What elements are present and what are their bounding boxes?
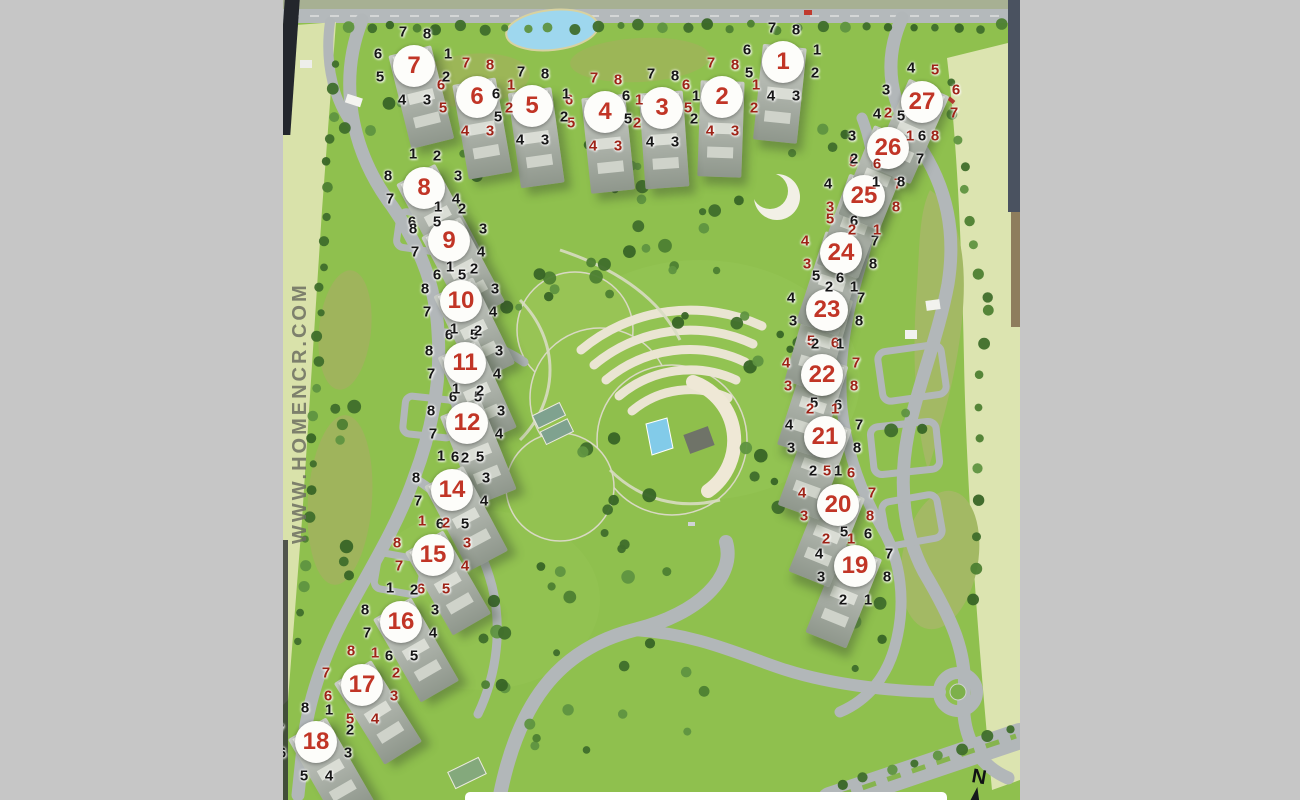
unit-number: 1	[864, 593, 872, 608]
tower-number: 9	[442, 229, 455, 253]
unit-number: 7	[885, 547, 893, 562]
tower-number-badge: 12	[446, 402, 488, 444]
unit-number: 8	[853, 441, 861, 456]
unit-number: 8	[792, 23, 800, 38]
unit-number: 3	[826, 200, 834, 215]
unit-number: 7	[399, 25, 407, 40]
unit-number: 8	[883, 570, 891, 585]
unit-number: 8	[421, 282, 429, 297]
unit-number: 7	[916, 152, 924, 167]
site-model-photo: WWW.HOMENCR.COM 781234561781234562781234…	[0, 0, 1300, 800]
model-table-edge-right-mid	[1011, 212, 1020, 327]
unit-number: 4	[495, 427, 503, 442]
unit-number: 3	[787, 441, 795, 456]
unit-number: 2	[690, 112, 698, 127]
unit-number: 4	[801, 234, 809, 249]
unit-number: 2	[811, 337, 819, 352]
unit-number: 5	[461, 517, 469, 532]
unit-number: 2	[848, 223, 856, 238]
tower-number: 27	[909, 90, 936, 114]
unit-number: 2	[461, 451, 469, 466]
unit-number: 8	[731, 58, 739, 73]
unit-number: 2	[633, 116, 641, 131]
unit-number: 4	[815, 547, 823, 562]
unit-number: 7	[283, 723, 284, 738]
unit-number: 8	[409, 222, 417, 237]
tower-number: 17	[349, 673, 376, 697]
unit-number: 4	[325, 769, 333, 784]
tower-number: 15	[420, 543, 447, 567]
unit-number: 7	[868, 486, 876, 501]
tower-number-badge: 21	[804, 416, 846, 458]
unit-number: 4	[461, 559, 469, 574]
tower-number-badge: 19	[834, 545, 876, 587]
unit-number: 5	[823, 464, 831, 479]
unit-number: 7	[950, 106, 958, 121]
tower-number: 2	[715, 85, 728, 109]
unit-number: 1	[562, 87, 570, 102]
tower-number: 24	[828, 241, 855, 265]
unit-number: 4	[787, 291, 795, 306]
tower-number: 18	[303, 730, 330, 754]
tower-number: 6	[470, 85, 483, 109]
unit-number: 5	[476, 450, 484, 465]
unit-number: 4	[767, 89, 775, 104]
unit-number: 5	[300, 769, 308, 784]
unit-number: 6	[622, 89, 630, 104]
tower-number-badge: 18	[295, 721, 337, 763]
unit-number: 7	[647, 67, 655, 82]
unit-number: 1	[906, 129, 914, 144]
unit-number: 3	[541, 133, 549, 148]
tower-number-badge: 5	[511, 85, 553, 127]
unit-number: 8	[869, 257, 877, 272]
unit-number: 3	[482, 471, 490, 486]
unit-number: 7	[414, 494, 422, 509]
unit-number: 5	[410, 649, 418, 664]
tower-number: 21	[812, 425, 839, 449]
unit-number: 7	[855, 418, 863, 433]
unit-number: 3	[486, 124, 494, 139]
letterbox-right	[1020, 0, 1300, 800]
unit-number: 5	[442, 582, 450, 597]
unit-number: 2	[825, 280, 833, 295]
tower-number-badge: 10	[440, 280, 482, 322]
tower-number-badge: 22	[801, 354, 843, 396]
unit-number: 3	[479, 222, 487, 237]
unit-number: 4	[824, 177, 832, 192]
unit-number: 3	[848, 129, 856, 144]
unit-number: 4	[798, 486, 806, 501]
tower-number-badge: 11	[444, 342, 486, 384]
unit-number: 8	[892, 200, 900, 215]
unit-number: 8	[931, 129, 939, 144]
unit-number: 6	[847, 466, 855, 481]
unit-number: 6	[433, 268, 441, 283]
unit-number: 4	[429, 626, 437, 641]
tower-number: 4	[598, 100, 611, 124]
unit-number: 3	[784, 379, 792, 394]
tower-number: 19	[842, 554, 869, 578]
unit-number: 3	[614, 139, 622, 154]
unit-number: 1	[692, 89, 700, 104]
unit-number: 8	[850, 379, 858, 394]
unit-number: 5	[439, 101, 447, 116]
tower-number: 1	[776, 50, 789, 74]
unit-number: 6	[283, 746, 286, 761]
unit-number: 4	[493, 367, 501, 382]
unit-number: 2	[392, 666, 400, 681]
letterbox-left	[0, 0, 283, 800]
unit-number: 7	[462, 56, 470, 71]
tower-number-badge: 17	[341, 664, 383, 706]
unit-number: 7	[429, 427, 437, 442]
unit-number: 3	[491, 282, 499, 297]
tower-number: 20	[825, 493, 852, 517]
unit-number: 3	[390, 689, 398, 704]
unit-number: 6	[682, 78, 690, 93]
unit-number: 8	[486, 58, 494, 73]
tower-number: 23	[814, 298, 841, 322]
unit-number: 8	[423, 27, 431, 42]
unit-number: 1	[386, 581, 394, 596]
unit-number: 1	[507, 78, 515, 93]
unit-number: 2	[442, 70, 450, 85]
unit-number: 6	[864, 527, 872, 542]
unit-number: 4	[480, 494, 488, 509]
unit-number: 8	[393, 536, 401, 551]
unit-number: 2	[839, 593, 847, 608]
unit-number: 4	[477, 245, 485, 260]
unit-number: 1	[831, 402, 839, 417]
unit-number: 3	[882, 83, 890, 98]
unit-number: 2	[806, 402, 814, 417]
tower-number-badge: 2	[701, 76, 743, 118]
tower-number-badge: 20	[817, 484, 859, 526]
unit-number: 4	[489, 305, 497, 320]
unit-number: 8	[897, 175, 905, 190]
tower-number-badge: 3	[641, 87, 683, 129]
unit-number: 6	[374, 47, 382, 62]
unit-number: 3	[800, 509, 808, 524]
unit-number: 7	[707, 56, 715, 71]
unit-number: 4	[706, 124, 714, 139]
unit-number: 7	[423, 305, 431, 320]
unit-number: 1	[409, 147, 417, 162]
unit-number: 5	[376, 70, 384, 85]
unit-number: 1	[872, 175, 880, 190]
unit-number: 3	[731, 124, 739, 139]
unit-number: 8	[855, 314, 863, 329]
unit-number: 7	[590, 71, 598, 86]
unit-number: 2	[476, 384, 484, 399]
tower-number: 5	[525, 94, 538, 118]
unit-number: 3	[497, 404, 505, 419]
unit-number: 4	[589, 139, 597, 154]
tower-number-badge: 7	[393, 45, 435, 87]
unit-number: 8	[541, 67, 549, 82]
tower-number: 10	[448, 289, 475, 313]
unit-number: 4	[873, 107, 881, 122]
unit-number: 6	[385, 649, 393, 664]
unit-number: 5	[494, 110, 502, 125]
unit-number: 3	[423, 93, 431, 108]
tower-markers-layer: 7812345617812345627812345637812345647812…	[283, 0, 1020, 800]
tower-number-badge: 15	[412, 534, 454, 576]
model-table-edge-right-top	[1008, 0, 1020, 212]
unit-number: 5	[458, 268, 466, 283]
unit-number: 7	[768, 21, 776, 36]
unit-number: 1	[752, 78, 760, 93]
unit-number: 6	[873, 157, 881, 172]
unit-number: 3	[344, 746, 352, 761]
unit-number: 5	[624, 112, 632, 127]
unit-number: 8	[671, 69, 679, 84]
unit-number: 2	[750, 101, 758, 116]
unit-number: 4	[785, 418, 793, 433]
bottom-banner	[465, 792, 947, 800]
unit-number: 1	[873, 223, 881, 238]
unit-number: 1	[850, 280, 858, 295]
unit-number: 2	[822, 532, 830, 547]
unit-number: 2	[442, 516, 450, 531]
unit-number: 2	[850, 152, 858, 167]
unit-number: 3	[803, 257, 811, 272]
unit-number: 7	[395, 559, 403, 574]
unit-number: 8	[866, 509, 874, 524]
unit-number: 2	[884, 106, 892, 121]
unit-number: 8	[427, 404, 435, 419]
unit-number: 2	[505, 101, 513, 116]
unit-number: 3	[495, 344, 503, 359]
unit-number: 4	[461, 124, 469, 139]
north-arrow-icon	[963, 784, 989, 800]
tower-number: 22	[809, 363, 836, 387]
tower-number: 11	[452, 351, 477, 375]
tower-number-badge: 1	[762, 41, 804, 83]
unit-number: 7	[322, 666, 330, 681]
master-plan-photo: WWW.HOMENCR.COM 781234561781234562781234…	[283, 0, 1020, 800]
unit-number: 3	[431, 603, 439, 618]
unit-number: 1	[450, 322, 458, 337]
tower-number: 3	[655, 96, 668, 120]
unit-number: 8	[412, 471, 420, 486]
unit-number: 1	[418, 514, 426, 529]
unit-number: 1	[847, 532, 855, 547]
unit-number: 6	[743, 43, 751, 58]
unit-number: 3	[817, 570, 825, 585]
unit-number: 1	[437, 449, 445, 464]
unit-number: 4	[782, 356, 790, 371]
unit-number: 7	[427, 367, 435, 382]
unit-number: 8	[614, 73, 622, 88]
tower-number: 8	[417, 176, 430, 200]
unit-number: 7	[363, 626, 371, 641]
unit-number: 5	[433, 215, 441, 230]
tower-number: 14	[439, 478, 466, 502]
unit-number: 3	[454, 169, 462, 184]
unit-number: 1	[446, 260, 454, 275]
unit-number: 7	[411, 245, 419, 260]
unit-number: 1	[836, 337, 844, 352]
unit-number: 1	[371, 646, 379, 661]
tower-number: 7	[407, 54, 420, 78]
unit-number: 5	[812, 269, 820, 284]
unit-number: 4	[646, 135, 654, 150]
unit-number: 6	[492, 87, 500, 102]
unit-number: 8	[384, 169, 392, 184]
unit-number: 2	[458, 202, 466, 217]
unit-number: 5	[897, 109, 905, 124]
unit-number: 2	[346, 723, 354, 738]
unit-number: 2	[811, 66, 819, 81]
tower-number: 16	[388, 610, 415, 634]
unit-number: 2	[560, 110, 568, 125]
unit-number: 1	[444, 47, 452, 62]
tower-number: 12	[454, 411, 481, 435]
unit-number: 8	[347, 644, 355, 659]
unit-number: 2	[433, 149, 441, 164]
unit-number: 8	[361, 603, 369, 618]
unit-number: 6	[451, 450, 459, 465]
unit-number: 3	[792, 89, 800, 104]
unit-number: 7	[386, 192, 394, 207]
unit-number: 2	[410, 583, 418, 598]
unit-number: 3	[463, 536, 471, 551]
unit-number: 4	[907, 61, 915, 76]
tower-number-badge: 4	[584, 91, 626, 133]
unit-number: 4	[371, 712, 379, 727]
unit-number: 8	[301, 701, 309, 716]
unit-number: 2	[474, 324, 482, 339]
unit-number: 6	[918, 129, 926, 144]
unit-number: 1	[325, 703, 333, 718]
unit-number: 2	[809, 464, 817, 479]
unit-number: 6	[952, 83, 960, 98]
unit-number: 7	[852, 356, 860, 371]
unit-number: 1	[452, 382, 460, 397]
unit-number: 8	[425, 344, 433, 359]
unit-number: 2	[470, 262, 478, 277]
unit-number: 6	[836, 271, 844, 286]
unit-number: 5	[931, 63, 939, 78]
unit-number: 4	[516, 133, 524, 148]
unit-number: 4	[398, 93, 406, 108]
unit-number: 1	[813, 43, 821, 58]
tower-number-badge: 14	[431, 469, 473, 511]
unit-number: 7	[517, 65, 525, 80]
unit-number: 1	[834, 464, 842, 479]
unit-number: 3	[671, 135, 679, 150]
tower-number-badge: 16	[380, 601, 422, 643]
tower-number-badge: 27	[901, 81, 943, 123]
unit-number: 3	[789, 314, 797, 329]
unit-number: 1	[434, 200, 442, 215]
unit-number: 1	[635, 93, 643, 108]
